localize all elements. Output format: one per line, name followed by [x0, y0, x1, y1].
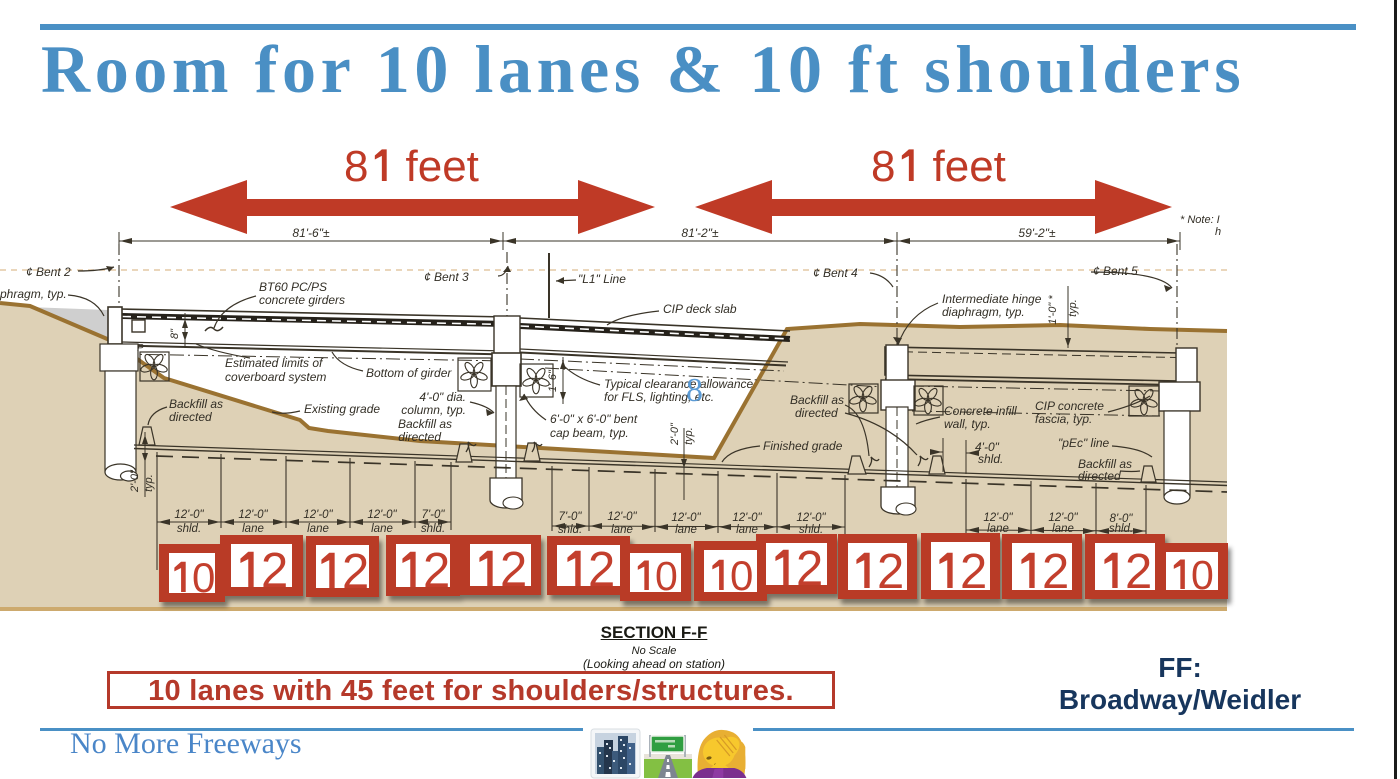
svg-text:feet: feet [406, 142, 479, 191]
svg-text:CIP deck slab: CIP deck slab [663, 302, 737, 316]
svg-text:8: 8 [344, 142, 368, 191]
svg-text:0: 0 [192, 554, 215, 601]
svg-text:59'-2"±: 59'-2"± [1018, 226, 1056, 240]
svg-text:shld.: shld. [978, 452, 1003, 466]
svg-text:¢ Bent 5: ¢ Bent 5 [1093, 264, 1138, 278]
svg-text:Backfill as: Backfill as [169, 397, 223, 411]
svg-text:7'-0": 7'-0" [559, 511, 583, 523]
svg-text:12'-0": 12'-0" [732, 512, 762, 524]
svg-text:Concrete infill: Concrete infill [944, 404, 1017, 418]
svg-text:12'-0": 12'-0" [367, 509, 397, 521]
svg-text:2: 2 [261, 544, 288, 598]
svg-text:1'-0" *: 1'-0" * [1047, 295, 1059, 325]
svg-text:2: 2 [423, 544, 450, 598]
svg-text:0: 0 [730, 552, 753, 599]
svg-text:CIP concrete: CIP concrete [1035, 399, 1104, 413]
svg-text:lane: lane [371, 523, 393, 535]
svg-text:Backfill as: Backfill as [790, 393, 844, 407]
svg-text:h: h [1215, 226, 1221, 238]
svg-text:* Note: I: * Note: I [1180, 214, 1220, 226]
svg-text:shld.: shld. [1109, 523, 1133, 535]
svg-text:0: 0 [1191, 552, 1214, 598]
svg-text:"pEc" line: "pEc" line [1058, 436, 1110, 450]
svg-text:lane: lane [1052, 523, 1074, 535]
svg-text:shld.: shld. [558, 524, 582, 536]
svg-text:lane: lane [242, 523, 264, 535]
svg-text:phragm, typ.: phragm, typ. [0, 287, 67, 301]
svg-text:¢ Bent 4: ¢ Bent 4 [813, 266, 858, 280]
svg-text:¢ Bent 2: ¢ Bent 2 [26, 265, 71, 279]
svg-text:2: 2 [1125, 545, 1152, 599]
svg-text:Typical clearance allowance: Typical clearance allowance [604, 377, 754, 391]
svg-text:Backfill as: Backfill as [398, 417, 452, 431]
svg-text:cap beam, typ.: cap beam, typ. [550, 426, 629, 440]
svg-text:2: 2 [1042, 545, 1069, 599]
svg-text:Existing grade: Existing grade [304, 402, 380, 416]
svg-text:6'-0" x 6'-0" bent: 6'-0" x 6'-0" bent [550, 412, 638, 426]
svg-text:12'-0": 12'-0" [796, 512, 826, 524]
svg-text:BT60 PC/PS: BT60 PC/PS [259, 280, 327, 294]
svg-text:P: P [137, 343, 144, 354]
svg-text:2'-0": 2'-0" [669, 422, 681, 446]
svg-text:typ.: typ. [1067, 299, 1079, 317]
svg-text:12'-0": 12'-0" [671, 512, 701, 524]
svg-text:2'-0": 2'-0" [129, 469, 141, 493]
svg-text:8: 8 [686, 372, 703, 409]
svg-text:Finished grade: Finished grade [763, 439, 843, 453]
svg-text:81'-6"±: 81'-6"± [292, 226, 330, 240]
svg-text:0: 0 [655, 553, 678, 599]
svg-text:concrete girders: concrete girders [259, 293, 345, 307]
svg-text:2: 2 [342, 545, 369, 599]
svg-text:2: 2 [877, 545, 904, 599]
svg-text:column, typ.: column, typ. [401, 403, 466, 417]
svg-text:¢ Bent 3: ¢ Bent 3 [424, 270, 469, 284]
svg-text:Bottom of girder: Bottom of girder [366, 366, 452, 380]
svg-text:typ.: typ. [143, 474, 155, 492]
svg-text:1'-6": 1'-6" [547, 369, 559, 392]
svg-text:feet: feet [933, 142, 1006, 191]
svg-text:2: 2 [588, 543, 615, 597]
svg-text:81'-2"±: 81'-2"± [681, 226, 719, 240]
svg-text:2: 2 [500, 543, 527, 597]
svg-text:lane: lane [736, 524, 758, 536]
svg-text:Estimated limits of: Estimated limits of [225, 356, 324, 370]
svg-text:directed: directed [1078, 469, 1121, 483]
svg-text:directed: directed [398, 430, 441, 444]
svg-text:12'-0": 12'-0" [174, 509, 204, 521]
svg-text:directed: directed [169, 410, 212, 424]
svg-text:8: 8 [871, 142, 895, 191]
svg-text:12'-0": 12'-0" [303, 509, 333, 521]
svg-text:diaphragm, typ.: diaphragm, typ. [942, 305, 1025, 319]
svg-text:typ.: typ. [683, 427, 695, 445]
svg-text:Intermediate hinge: Intermediate hinge [942, 292, 1042, 306]
svg-text:12'-0": 12'-0" [238, 509, 268, 521]
svg-text:lane: lane [611, 524, 633, 536]
svg-text:8": 8" [169, 328, 181, 339]
svg-text:12'-0": 12'-0" [607, 511, 637, 523]
svg-text:coverboard system: coverboard system [225, 370, 326, 384]
svg-text:2: 2 [796, 542, 823, 596]
svg-text:lane: lane [675, 524, 697, 536]
svg-text:4'-0" dia.: 4'-0" dia. [419, 390, 466, 404]
svg-text:shld.: shld. [177, 523, 201, 535]
svg-text:"L1" Line: "L1" Line [578, 272, 626, 286]
svg-text:7'-0": 7'-0" [422, 509, 446, 521]
svg-text:wall, typ.: wall, typ. [944, 417, 991, 431]
svg-text:fascia, typ.: fascia, typ. [1035, 412, 1092, 426]
svg-text:directed: directed [795, 406, 838, 420]
svg-text:2: 2 [960, 545, 987, 599]
svg-text:shld.: shld. [421, 523, 445, 535]
svg-text:lane: lane [307, 523, 329, 535]
